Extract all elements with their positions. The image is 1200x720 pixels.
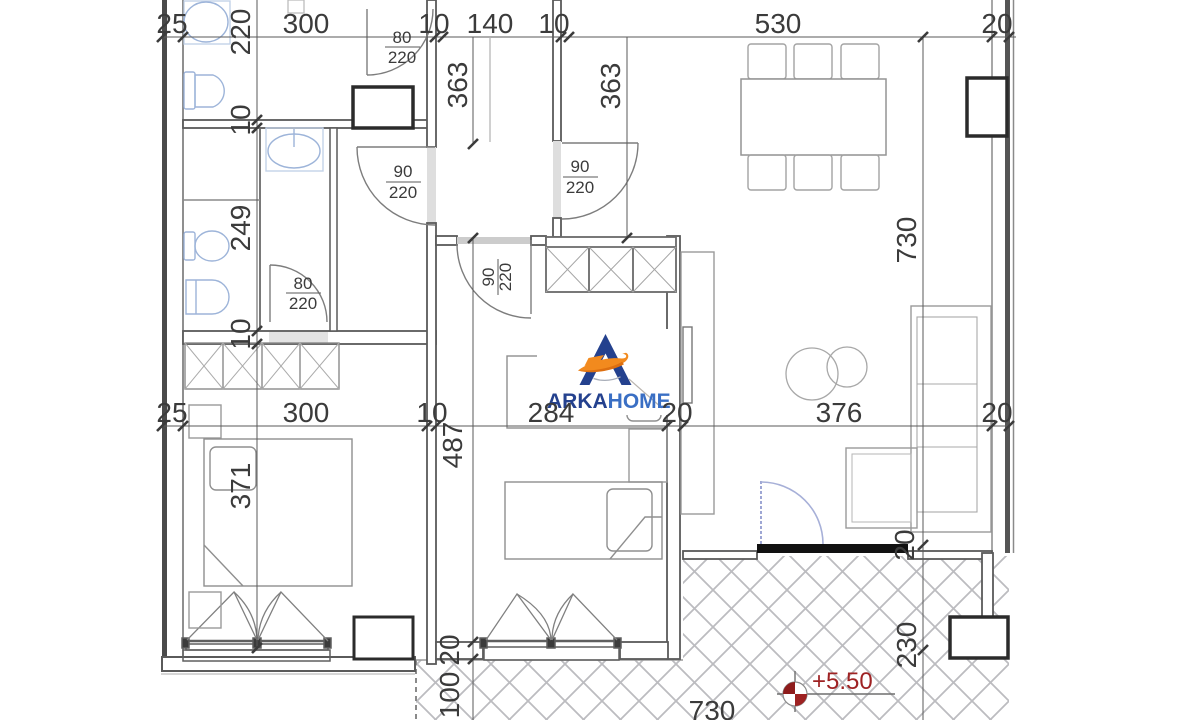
svg-text:363: 363 <box>595 63 626 110</box>
svg-text:730: 730 <box>891 217 922 264</box>
svg-text:249: 249 <box>225 205 256 252</box>
svg-text:90: 90 <box>571 157 590 176</box>
svg-text:20: 20 <box>434 634 465 665</box>
svg-text:220: 220 <box>389 183 417 202</box>
svg-text:20: 20 <box>981 397 1012 428</box>
svg-text:230: 230 <box>891 622 922 669</box>
svg-text:220: 220 <box>496 263 515 291</box>
svg-text:20: 20 <box>889 529 920 560</box>
svg-text:300: 300 <box>283 397 330 428</box>
svg-text:90: 90 <box>394 162 413 181</box>
svg-text:530: 530 <box>755 8 802 39</box>
svg-text:10: 10 <box>538 8 569 39</box>
svg-text:371: 371 <box>225 463 256 510</box>
svg-text:487: 487 <box>437 422 468 469</box>
svg-text:25: 25 <box>156 397 187 428</box>
svg-text:363: 363 <box>442 62 473 109</box>
svg-text:220: 220 <box>566 178 594 197</box>
svg-text:220: 220 <box>388 48 416 67</box>
svg-text:220: 220 <box>289 294 317 313</box>
svg-text:100: 100 <box>434 672 465 719</box>
svg-text:20: 20 <box>661 397 692 428</box>
svg-text:25: 25 <box>156 8 187 39</box>
svg-text:730: 730 <box>689 695 736 720</box>
svg-text:300: 300 <box>283 8 330 39</box>
svg-text:80: 80 <box>294 274 313 293</box>
svg-text:10: 10 <box>225 104 256 135</box>
svg-text:+5.50: +5.50 <box>812 668 873 695</box>
svg-text:20: 20 <box>981 8 1012 39</box>
svg-text:10: 10 <box>418 8 449 39</box>
svg-text:284: 284 <box>528 397 575 428</box>
svg-text:376: 376 <box>816 397 863 428</box>
svg-text:10: 10 <box>225 318 256 349</box>
svg-text:220: 220 <box>225 9 256 56</box>
svg-text:80: 80 <box>393 28 412 47</box>
svg-text:140: 140 <box>467 8 514 39</box>
